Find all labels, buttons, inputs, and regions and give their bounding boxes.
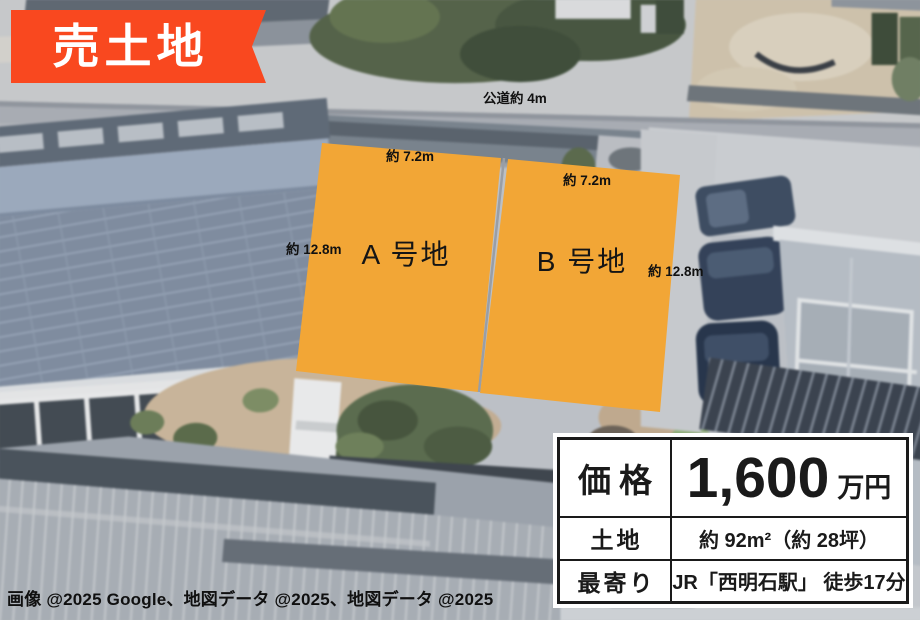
parcel-a-width-label: 約 7.2m bbox=[386, 150, 434, 164]
info-table: 価格 1,600 万円 土地 約 92m²（約 28坪） 最寄り JR「西明石駅… bbox=[557, 437, 909, 604]
road-width-label: 公道約 4m bbox=[483, 92, 547, 106]
land-value: 約 92m²（約 28坪） bbox=[699, 524, 879, 553]
land-label-cell: 土地 bbox=[560, 516, 672, 558]
flyer-canvas: 公道約 4m 約 7.2m 約 7.2m 約 12.8m 約 12.8m A 号… bbox=[0, 0, 920, 620]
station-label: 最寄り bbox=[575, 564, 656, 598]
parcel-a-depth-label: 約 12.8m bbox=[286, 243, 342, 257]
parcel-b-shape bbox=[480, 159, 680, 412]
parcel-a-name: A 号地 bbox=[336, 241, 476, 269]
price-value: 1,600 bbox=[687, 450, 830, 507]
station-value-cell: JR「西明石駅」 徒歩17分 bbox=[672, 559, 906, 601]
price-value-wrap: 1,600 万円 bbox=[687, 450, 892, 507]
price-unit: 万円 bbox=[837, 466, 891, 505]
parcel-b-name: B 号地 bbox=[512, 248, 652, 276]
sale-banner-label: 売土地 bbox=[53, 23, 209, 70]
price-label: 価格 bbox=[570, 454, 660, 502]
station-label-cell: 最寄り bbox=[560, 559, 672, 601]
price-label-cell: 価格 bbox=[560, 440, 672, 516]
parcel-b-depth-label: 約 12.8m bbox=[648, 265, 704, 279]
map-attribution: 画像 @2025 Google、地図データ @2025、地図データ @2025 bbox=[7, 585, 493, 610]
info-card: 価格 1,600 万円 土地 約 92m²（約 28坪） 最寄り JR「西明石駅… bbox=[553, 433, 913, 608]
station-value: JR「西明石駅」 徒歩17分 bbox=[672, 566, 905, 595]
parcel-b-width-label: 約 7.2m bbox=[563, 174, 611, 188]
land-value-cell: 約 92m²（約 28坪） bbox=[672, 516, 906, 558]
land-label: 土地 bbox=[588, 521, 643, 555]
price-value-cell: 1,600 万円 bbox=[672, 440, 906, 516]
sale-banner: 売土地 bbox=[11, 10, 266, 83]
